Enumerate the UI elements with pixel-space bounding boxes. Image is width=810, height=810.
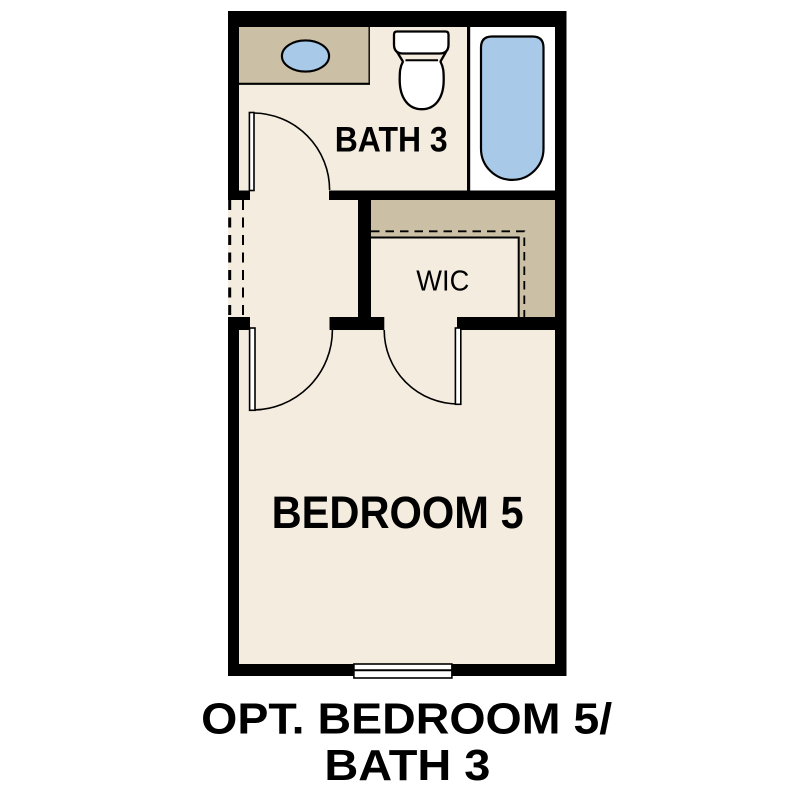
svg-text:OPT. BEDROOM 5/: OPT. BEDROOM 5/ (201, 694, 612, 743)
svg-text:BATH 3: BATH 3 (335, 121, 448, 160)
svg-text:WIC: WIC (416, 266, 469, 298)
svg-text:BATH 3: BATH 3 (324, 741, 490, 790)
svg-text:BEDROOM 5: BEDROOM 5 (272, 487, 524, 538)
